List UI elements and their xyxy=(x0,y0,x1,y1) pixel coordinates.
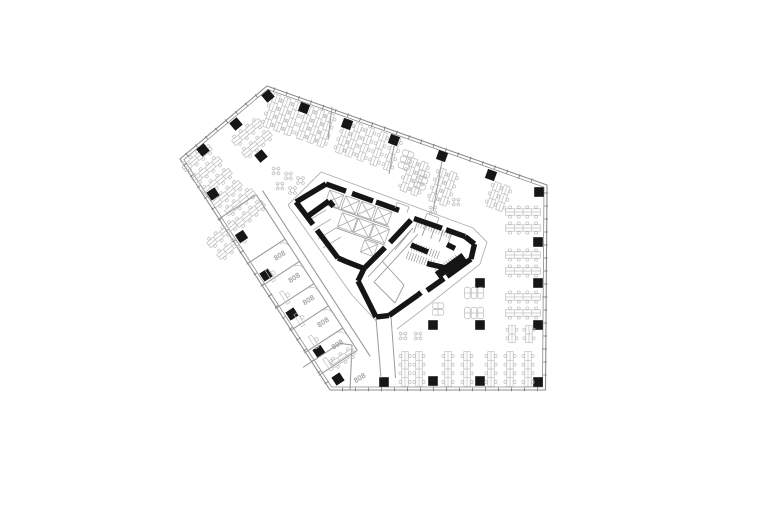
svg-text:808: 808 xyxy=(301,293,316,307)
svg-text:808: 808 xyxy=(315,315,330,329)
svg-text:808: 808 xyxy=(286,271,301,285)
svg-text:808: 808 xyxy=(272,248,287,262)
svg-text:808: 808 xyxy=(352,371,367,385)
